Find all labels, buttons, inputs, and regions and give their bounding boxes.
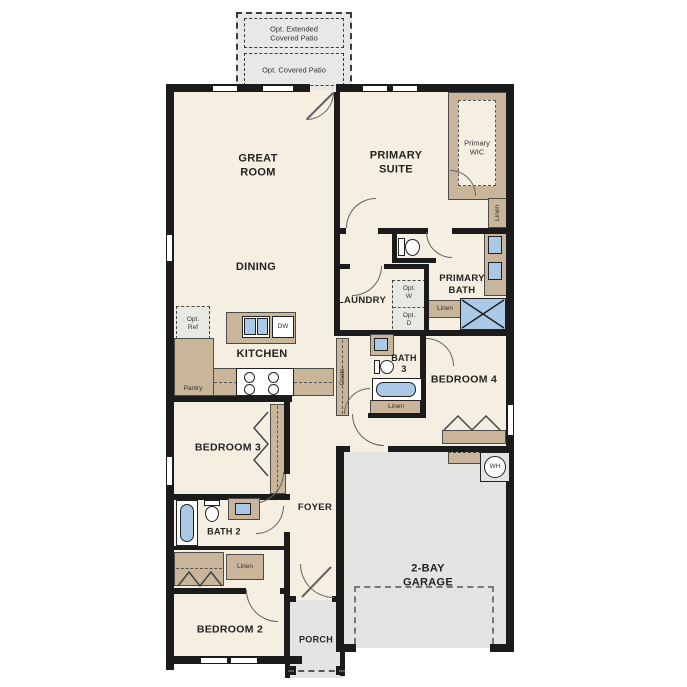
stove-burner [244,384,255,395]
window-greatroom-1 [212,85,238,92]
porch-label: PORCH [299,634,333,645]
water-heater-label: WH [490,463,501,471]
window-bedroom3 [166,456,173,486]
wall-greatroom-suite [334,92,340,228]
wall-garage-bottom-left [336,644,356,652]
opt-covered-patio-label: Opt. Covered Patio [262,65,326,74]
kitchen-sink-1 [244,318,256,335]
bedroom3-label: BEDROOM 3 [195,441,261,454]
opt-ref-label: Opt. Ref [187,316,199,332]
bedroom4-closet-shelf [442,430,506,444]
primary-shower [460,298,506,330]
bath2-tub-basin [180,504,194,542]
wall-left [166,84,174,670]
wall-laundry-left [334,234,340,336]
window-suite-1 [362,85,388,92]
wall-laundry-top-a [334,264,350,269]
laundry-label: LAUNDRY [338,295,386,307]
wall-right [506,84,514,652]
primary-bath-label: PRIMARY BATH [439,273,485,297]
wall-front-stub-left [286,596,296,602]
wall-toilet-room-bottom [392,258,436,263]
bath3-tub-basin [376,382,416,397]
bath2-sink [235,503,251,515]
dishwasher-label: DW [278,323,289,331]
pantry-label: Pantry [184,385,203,393]
window-bedroom2-1 [200,657,228,664]
bath2-label: BATH 2 [207,526,241,537]
floor-plan: Opt. Extended Covered Patio Opt. Covered… [0,0,687,687]
opt-extended-patio-label: Opt. Extended Covered Patio [270,25,318,44]
wall-kitchen-bedroom3 [170,396,292,402]
coats-label: Coats [339,369,347,386]
primary-sink-2 [488,262,502,280]
garage-label: 2-BAY GARAGE [403,562,453,590]
window-bedroom4 [507,404,514,436]
bedroom2-closet [174,552,224,586]
primary-wic-label: Primary WIC [464,139,490,158]
foyer-label: FOYER [298,502,332,514]
stove-burner [268,384,279,395]
stove-burner [268,372,279,383]
primary-sink-1 [488,236,502,254]
bedroom2-label: BEDROOM 2 [197,623,263,636]
kitchen-sink-2 [257,318,268,335]
bath3-label: BATH 3 [391,353,417,376]
wall-bedroom2-top-b [280,588,290,594]
wall-suite-bottom-b [378,228,428,234]
wall-suite-bottom-c [452,228,506,234]
wall-garage-left [336,452,344,644]
opt-washer-label: Opt. W [403,285,415,301]
wall-garage-bottom-right [490,644,514,652]
opt-dryer-label: Opt. D [403,312,415,328]
stove-burner [244,372,255,383]
linen-hall-label: Linen [237,563,253,571]
great-room-label: GREAT ROOM [238,152,277,180]
dining-label: DINING [236,261,276,275]
wall-bedroom2-top-a [170,588,246,594]
porch-edge-dashed [288,670,345,672]
window-suite-2 [392,85,418,92]
linen-bath-label: Linen [437,305,453,313]
linen-bath3-label: Linen [388,403,404,411]
bedroom4-label: BEDROOM 4 [431,373,497,386]
kitchen-label: KITCHEN [237,348,288,362]
linen-wic-label: Linen [494,205,502,221]
window-bedroom2-2 [230,657,258,664]
window-greatroom-2 [262,85,294,92]
window-dining [166,234,173,262]
wall-bath2-bottom [170,546,290,550]
wall-foyer-left-upper [284,402,290,474]
primary-suite-label: PRIMARY SUITE [370,149,422,177]
garage-door-dashed [354,586,494,644]
wall-laundry-top-b [384,264,426,269]
primary-toilet-tank [398,238,405,256]
bath3-sink [374,338,388,351]
wall-laundry-right [424,264,429,330]
